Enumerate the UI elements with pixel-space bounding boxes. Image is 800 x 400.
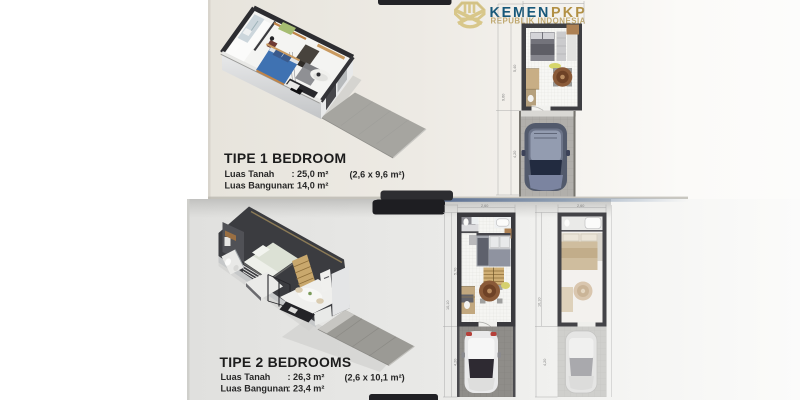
svg-text:4,20: 4,20 [513,151,517,158]
svg-text:: 25,0 m²: : 25,0 m² [292,169,329,179]
svg-text:5,70: 5,70 [454,268,458,275]
svg-text:: 14,0 m²: : 14,0 m² [292,181,329,191]
svg-text:TIPE 2 BEDROOMS: TIPE 2 BEDROOMS [220,354,352,370]
svg-text:: 26,3 m²: : 26,3 m² [288,372,325,382]
svg-text:Luas Tanah: Luas Tanah [221,372,271,382]
svg-text:10,10: 10,10 [446,300,450,310]
svg-text:: 23,4 m²: : 23,4 m² [288,384,325,394]
svg-text:(2,6 x 9,6 m²): (2,6 x 9,6 m²) [350,170,405,180]
svg-text:TIPE 1 BEDROOM: TIPE 1 BEDROOM [224,150,346,166]
svg-text:2,60: 2,60 [577,204,584,208]
svg-text:2,60: 2,60 [481,204,488,208]
svg-text:4,20: 4,20 [454,359,458,366]
svg-text:Luas Tanah: Luas Tanah [225,169,275,179]
svg-text:4,20: 4,20 [543,359,547,366]
svg-text:Luas Bangunan: Luas Bangunan [225,181,293,191]
svg-text:Luas Bangunan: Luas Bangunan [221,384,289,394]
svg-text:10,10: 10,10 [538,297,542,307]
svg-text:(2,6 x 10,1 m²): (2,6 x 10,1 m²) [345,373,405,383]
svg-text:9,60: 9,60 [502,94,506,101]
svg-text:5,40: 5,40 [513,65,517,72]
